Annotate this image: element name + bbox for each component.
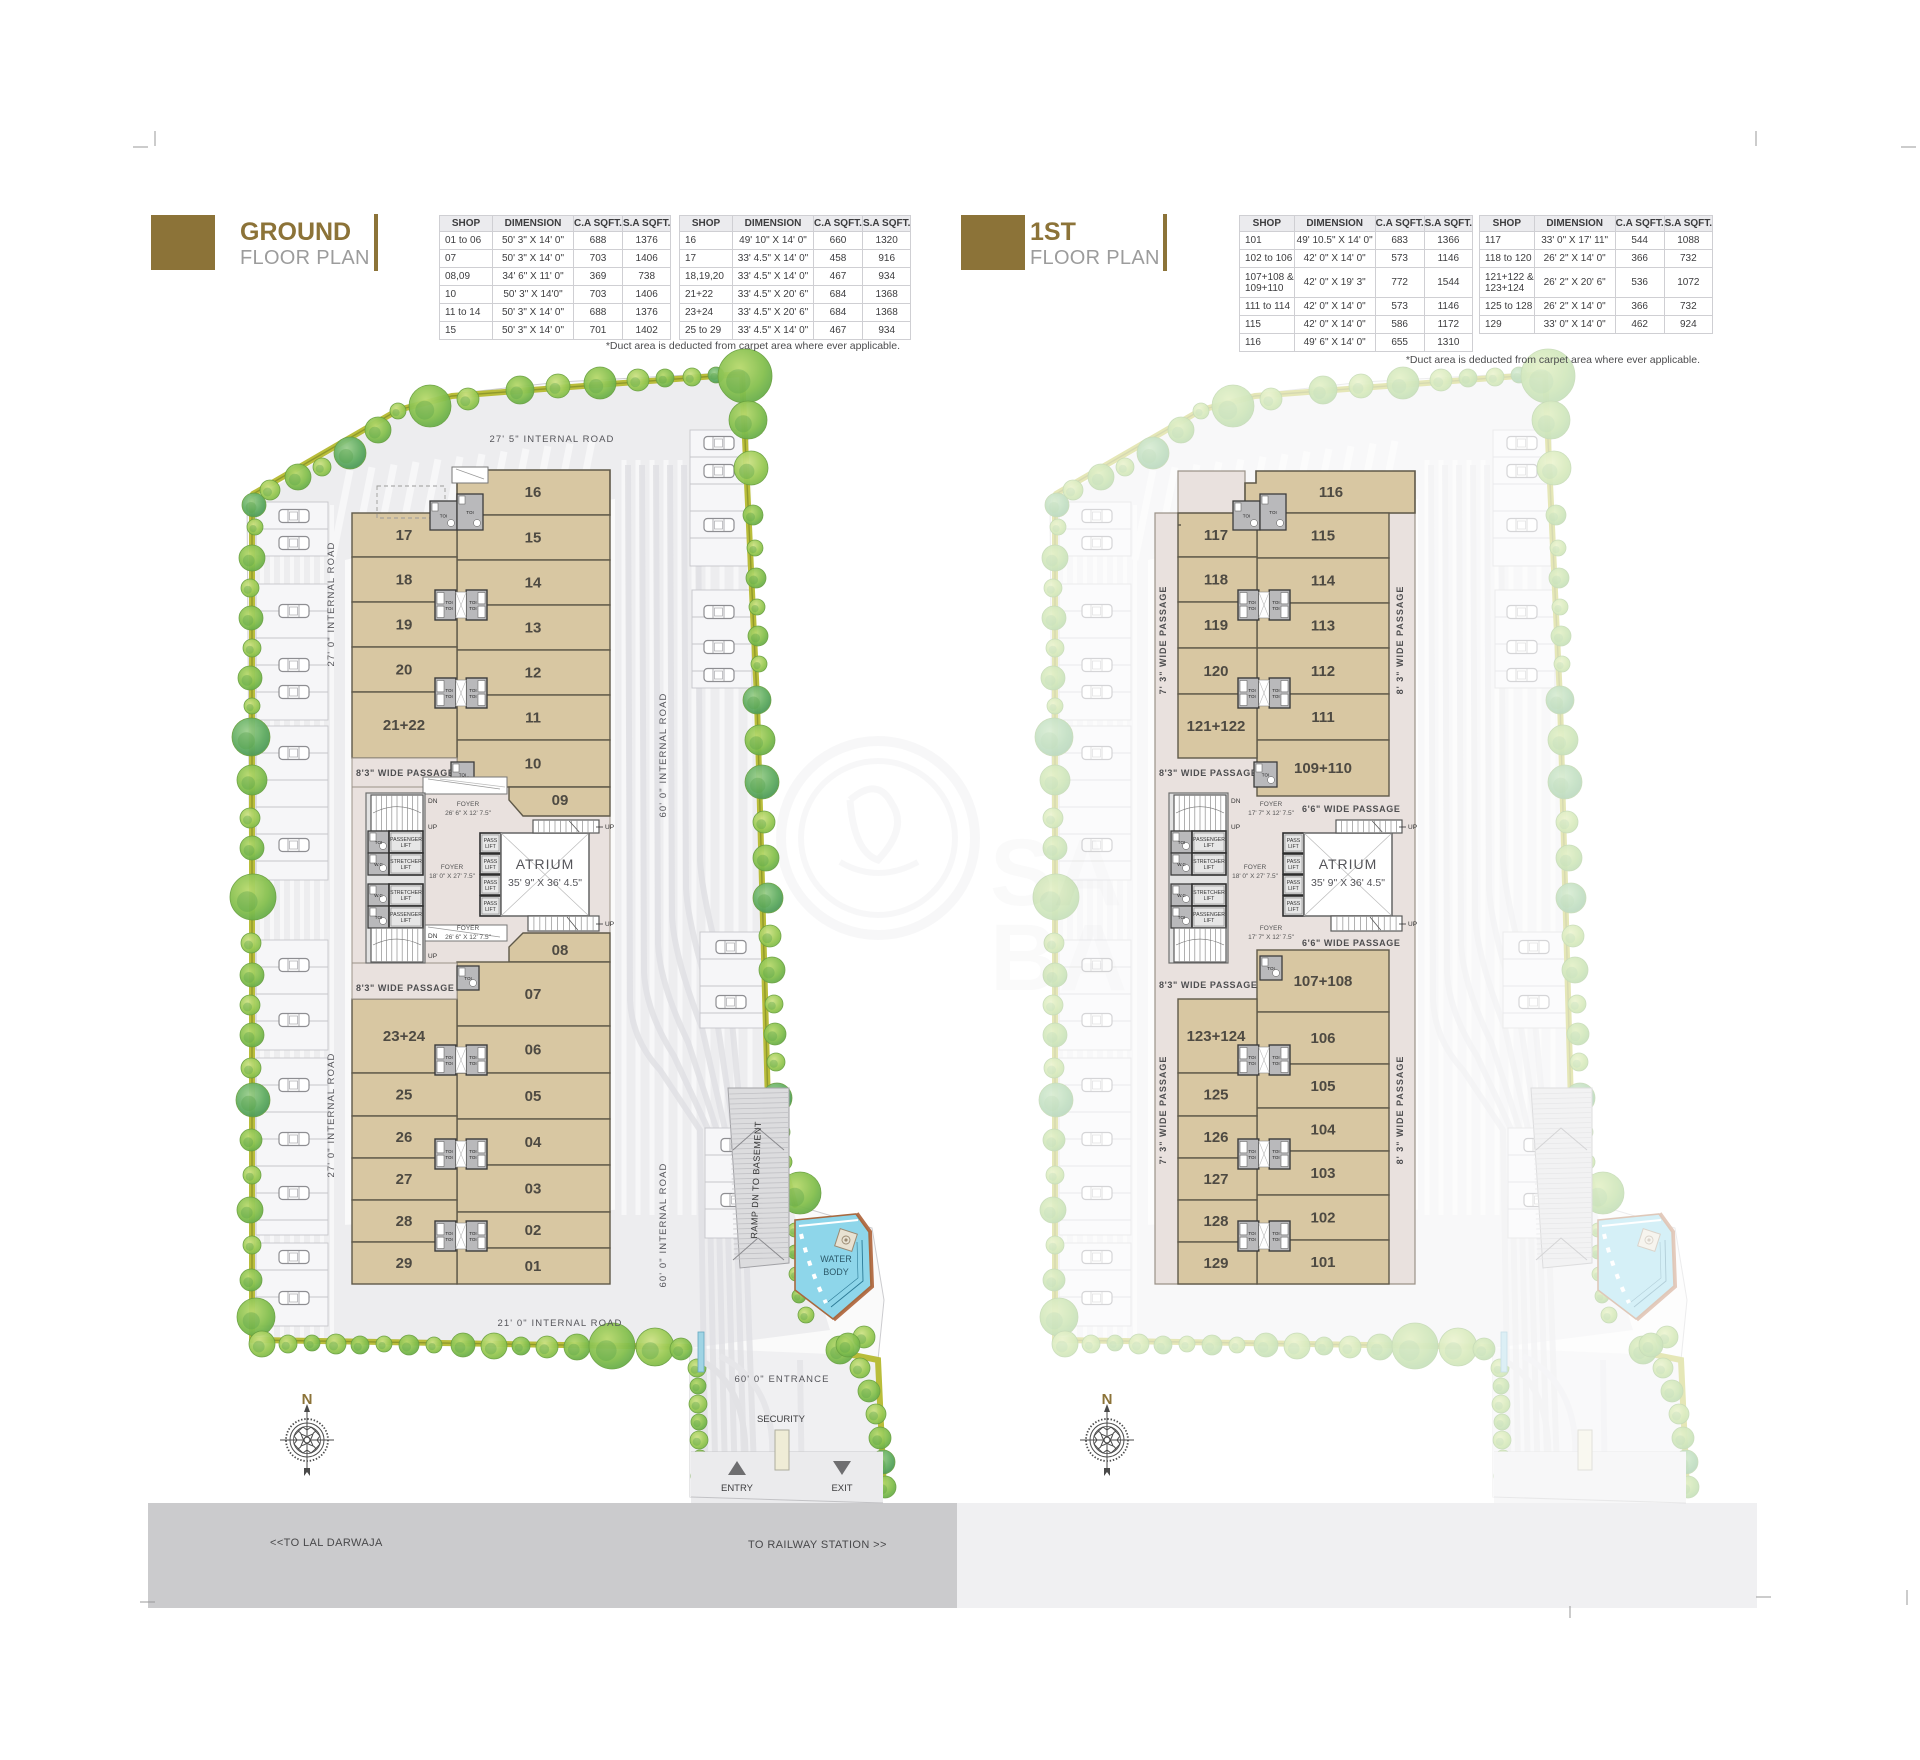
svg-text:TOI: TOI bbox=[1248, 1149, 1255, 1154]
svg-text:TOI: TOI bbox=[469, 1149, 476, 1154]
svg-text:29: 29 bbox=[396, 1255, 413, 1272]
svg-text:TOI: TOI bbox=[1267, 966, 1274, 971]
svg-text:TOI: TOI bbox=[469, 600, 476, 605]
svg-text:TOI: TOI bbox=[1248, 1237, 1255, 1242]
svg-text:8'3" WIDE PASSAGE: 8'3" WIDE PASSAGE bbox=[1159, 768, 1257, 778]
svg-text:07: 07 bbox=[525, 986, 542, 1003]
svg-text:LIFT: LIFT bbox=[1204, 896, 1215, 902]
svg-text:28: 28 bbox=[396, 1213, 413, 1230]
svg-text:W.C: W.C bbox=[1177, 862, 1186, 867]
svg-text:TOI: TOI bbox=[1272, 1155, 1279, 1160]
svg-text:UP: UP bbox=[1408, 921, 1417, 928]
svg-text:TOI: TOI bbox=[1248, 1155, 1255, 1160]
svg-text:111: 111 bbox=[1311, 709, 1334, 726]
svg-text:TOI: TOI bbox=[469, 1237, 476, 1242]
svg-text:27: 27 bbox=[396, 1171, 413, 1188]
svg-text:20: 20 bbox=[396, 662, 413, 679]
svg-text:DN: DN bbox=[428, 798, 438, 805]
svg-text:25: 25 bbox=[396, 1087, 413, 1104]
svg-text:TOI: TOI bbox=[469, 1155, 476, 1160]
svg-text:<<TO LAL DARWAJA: <<TO LAL DARWAJA bbox=[270, 1537, 383, 1549]
svg-text:27' 0" INTERNAL ROAD: 27' 0" INTERNAL ROAD bbox=[326, 541, 337, 666]
svg-text:UP: UP bbox=[1231, 824, 1240, 831]
svg-text:FOYER: FOYER bbox=[1260, 925, 1283, 932]
svg-text:113: 113 bbox=[1311, 618, 1335, 635]
svg-text:08: 08 bbox=[552, 942, 569, 959]
svg-text:109+110: 109+110 bbox=[1294, 760, 1352, 777]
svg-text:102: 102 bbox=[1310, 1210, 1335, 1227]
svg-text:LIFT: LIFT bbox=[485, 865, 496, 871]
svg-text:114: 114 bbox=[1311, 573, 1336, 590]
svg-text:TOI: TOI bbox=[469, 1231, 476, 1236]
svg-text:8' 3" WIDE PASSAGE: 8' 3" WIDE PASSAGE bbox=[1395, 586, 1405, 695]
svg-text:14: 14 bbox=[525, 575, 542, 592]
svg-text:TOI: TOI bbox=[1248, 1231, 1255, 1236]
svg-text:LIFT: LIFT bbox=[1288, 844, 1299, 850]
svg-text:LIFT: LIFT bbox=[1204, 918, 1215, 924]
svg-text:7' 3" WIDE PASSAGE: 7' 3" WIDE PASSAGE bbox=[1158, 1056, 1168, 1165]
svg-text:TOI: TOI bbox=[1272, 688, 1279, 693]
svg-text:N: N bbox=[302, 1391, 313, 1408]
svg-text:129: 129 bbox=[1203, 1255, 1228, 1272]
svg-text:TOI: TOI bbox=[1272, 1055, 1279, 1060]
svg-text:FOYER: FOYER bbox=[441, 864, 464, 871]
svg-text:DN: DN bbox=[1231, 798, 1241, 805]
svg-text:TOI: TOI bbox=[1272, 1149, 1279, 1154]
svg-text:TOI: TOI bbox=[1248, 600, 1255, 605]
svg-text:BODY: BODY bbox=[823, 1267, 849, 1277]
svg-text:13: 13 bbox=[525, 620, 542, 637]
svg-text:LIFT: LIFT bbox=[1288, 886, 1299, 892]
svg-text:LIFT: LIFT bbox=[401, 918, 412, 924]
svg-text:TOI: TOI bbox=[469, 1061, 476, 1066]
svg-text:115: 115 bbox=[1311, 528, 1335, 545]
svg-text:TOI: TOI bbox=[1272, 1231, 1279, 1236]
svg-text:117: 117 bbox=[1204, 527, 1228, 544]
svg-text:21+22: 21+22 bbox=[383, 717, 425, 734]
svg-text:60' 0" INTERNAL ROAD: 60' 0" INTERNAL ROAD bbox=[658, 1162, 669, 1287]
svg-text:17' 7" X 12' 7.5": 17' 7" X 12' 7.5" bbox=[1248, 810, 1294, 817]
svg-text:TOI: TOI bbox=[1262, 773, 1269, 778]
svg-text:TO RAILWAY STATION >>: TO RAILWAY STATION >> bbox=[748, 1539, 887, 1551]
svg-text:11: 11 bbox=[525, 710, 541, 727]
svg-text:TOI: TOI bbox=[445, 694, 452, 699]
svg-text:TOI: TOI bbox=[469, 606, 476, 611]
svg-text:104: 104 bbox=[1310, 1122, 1336, 1139]
svg-text:LIFT: LIFT bbox=[1204, 865, 1215, 871]
svg-text:116: 116 bbox=[1319, 484, 1343, 501]
svg-text:TOI: TOI bbox=[445, 606, 452, 611]
svg-text:TOI: TOI bbox=[1248, 688, 1255, 693]
svg-text:27' 0" INTERNAL ROAD: 27' 0" INTERNAL ROAD bbox=[326, 1052, 337, 1177]
svg-text:FOYER: FOYER bbox=[457, 925, 480, 932]
svg-text:ENTRY: ENTRY bbox=[721, 1483, 754, 1494]
svg-text:05: 05 bbox=[525, 1088, 542, 1105]
svg-text:18' 0" X 27' 7.5": 18' 0" X 27' 7.5" bbox=[429, 873, 475, 880]
svg-text:LIFT: LIFT bbox=[1288, 865, 1299, 871]
svg-text:LIFT: LIFT bbox=[485, 907, 496, 913]
svg-text:TOI: TOI bbox=[464, 976, 471, 981]
svg-text:FOYER: FOYER bbox=[457, 801, 480, 808]
svg-text:TOI: TOI bbox=[1272, 600, 1279, 605]
svg-text:16: 16 bbox=[525, 484, 542, 501]
svg-text:TOI: TOI bbox=[1248, 1055, 1255, 1060]
svg-text:01: 01 bbox=[525, 1258, 542, 1275]
svg-text:27' 5" INTERNAL ROAD: 27' 5" INTERNAL ROAD bbox=[489, 434, 614, 445]
svg-text:TOI: TOI bbox=[375, 840, 382, 845]
svg-text:LIFT: LIFT bbox=[1204, 843, 1215, 849]
svg-text:17: 17 bbox=[396, 527, 413, 544]
svg-text:W.C: W.C bbox=[374, 893, 383, 898]
svg-text:TOI: TOI bbox=[445, 1237, 452, 1242]
svg-text:119: 119 bbox=[1204, 617, 1228, 634]
svg-text:UP: UP bbox=[428, 953, 437, 960]
svg-text:10: 10 bbox=[525, 756, 542, 773]
svg-text:W.C: W.C bbox=[374, 862, 383, 867]
svg-text:15: 15 bbox=[525, 530, 542, 547]
svg-text:SECURITY: SECURITY bbox=[757, 1414, 806, 1425]
svg-text:TOI: TOI bbox=[469, 1055, 476, 1060]
svg-text:101: 101 bbox=[1310, 1254, 1335, 1271]
svg-text:TOI: TOI bbox=[445, 1155, 452, 1160]
svg-text:EXIT: EXIT bbox=[831, 1483, 852, 1494]
svg-text:TOI: TOI bbox=[1178, 840, 1185, 845]
svg-text:23+24: 23+24 bbox=[383, 1028, 426, 1045]
svg-text:TOI: TOI bbox=[375, 915, 382, 920]
svg-text:TOI: TOI bbox=[1248, 606, 1255, 611]
svg-text:FOYER: FOYER bbox=[1260, 801, 1283, 808]
svg-text:18: 18 bbox=[396, 572, 413, 589]
svg-text:DN: DN bbox=[428, 933, 438, 940]
svg-text:TOI: TOI bbox=[469, 694, 476, 699]
svg-text:8' 3" WIDE PASSAGE: 8' 3" WIDE PASSAGE bbox=[1395, 1056, 1405, 1165]
svg-text:TOI: TOI bbox=[1272, 694, 1279, 699]
svg-text:LIFT: LIFT bbox=[401, 865, 412, 871]
svg-text:127: 127 bbox=[1203, 1171, 1228, 1188]
svg-text:21' 0" INTERNAL ROAD: 21' 0" INTERNAL ROAD bbox=[497, 1318, 622, 1329]
svg-text:128: 128 bbox=[1203, 1213, 1228, 1230]
svg-text:60' 0" INTERNAL ROAD: 60' 0" INTERNAL ROAD bbox=[658, 692, 669, 817]
svg-text:125: 125 bbox=[1203, 1087, 1228, 1104]
svg-text:FOYER: FOYER bbox=[1244, 864, 1267, 871]
svg-text:126: 126 bbox=[1203, 1129, 1228, 1146]
svg-text:107+108: 107+108 bbox=[1294, 973, 1353, 990]
svg-text:17' 7" X 12' 7.5": 17' 7" X 12' 7.5" bbox=[1248, 934, 1294, 941]
svg-text:26' 6" X 12' 7.5": 26' 6" X 12' 7.5" bbox=[445, 810, 491, 817]
svg-text:ATRIUM: ATRIUM bbox=[516, 856, 575, 872]
svg-text:103: 103 bbox=[1310, 1165, 1335, 1182]
svg-text:8'3" WIDE PASSAGE: 8'3" WIDE PASSAGE bbox=[356, 983, 454, 993]
svg-text:118: 118 bbox=[1204, 572, 1228, 589]
svg-text:121+122: 121+122 bbox=[1187, 718, 1246, 735]
svg-text:04: 04 bbox=[525, 1134, 542, 1151]
svg-text:TOI: TOI bbox=[1178, 915, 1185, 920]
svg-text:03: 03 bbox=[525, 1181, 542, 1198]
svg-text:105: 105 bbox=[1310, 1078, 1335, 1095]
svg-text:TOI: TOI bbox=[445, 600, 452, 605]
svg-text:120: 120 bbox=[1203, 663, 1228, 680]
svg-text:09: 09 bbox=[552, 792, 569, 809]
svg-text:TOI: TOI bbox=[445, 1055, 452, 1060]
svg-text:26' 6" X 12' 7.5": 26' 6" X 12' 7.5" bbox=[445, 934, 491, 941]
svg-text:UP: UP bbox=[428, 824, 437, 831]
svg-text:8'3" WIDE PASSAGE: 8'3" WIDE PASSAGE bbox=[1159, 980, 1257, 990]
svg-text:TOI: TOI bbox=[469, 688, 476, 693]
svg-text:LIFT: LIFT bbox=[485, 844, 496, 850]
svg-text:18' 0" X 27' 7.5": 18' 0" X 27' 7.5" bbox=[1232, 873, 1278, 880]
svg-text:112: 112 bbox=[1311, 663, 1335, 680]
svg-text:LIFT: LIFT bbox=[401, 843, 412, 849]
svg-text:UP: UP bbox=[1408, 824, 1417, 831]
svg-text:TOI: TOI bbox=[1248, 694, 1255, 699]
svg-text:LIFT: LIFT bbox=[1288, 907, 1299, 913]
svg-text:7' 3" WIDE PASSAGE: 7' 3" WIDE PASSAGE bbox=[1158, 586, 1168, 695]
svg-text:TOI: TOI bbox=[1272, 1061, 1279, 1066]
svg-text:02: 02 bbox=[525, 1222, 542, 1239]
svg-text:TOI: TOI bbox=[1272, 606, 1279, 611]
svg-text:N: N bbox=[1102, 1391, 1113, 1408]
svg-text:6'6" WIDE PASSAGE: 6'6" WIDE PASSAGE bbox=[1302, 804, 1400, 814]
svg-text:TOI: TOI bbox=[1248, 1061, 1255, 1066]
svg-text:26: 26 bbox=[396, 1129, 413, 1146]
svg-text:TOI: TOI bbox=[1243, 514, 1250, 519]
svg-text:6'6" WIDE PASSAGE: 6'6" WIDE PASSAGE bbox=[1302, 938, 1400, 948]
svg-text:WATER: WATER bbox=[820, 1254, 852, 1264]
svg-text:TOI: TOI bbox=[1272, 1237, 1279, 1242]
svg-text:TOI: TOI bbox=[1269, 510, 1276, 515]
svg-text:TOI: TOI bbox=[445, 1061, 452, 1066]
svg-text:19: 19 bbox=[396, 617, 413, 634]
svg-text:TOI: TOI bbox=[445, 1149, 452, 1154]
svg-text:106: 106 bbox=[1310, 1030, 1335, 1047]
svg-text:60' 0" ENTRANCE: 60' 0" ENTRANCE bbox=[734, 1374, 829, 1385]
svg-text:LIFT: LIFT bbox=[485, 886, 496, 892]
svg-text:TOI: TOI bbox=[466, 510, 473, 515]
svg-text:35' 9" X 36' 4.5": 35' 9" X 36' 4.5" bbox=[1311, 877, 1385, 889]
svg-text:UP: UP bbox=[605, 921, 614, 928]
svg-text:12: 12 bbox=[525, 665, 542, 682]
svg-text:TOI: TOI bbox=[445, 688, 452, 693]
svg-text:TOI: TOI bbox=[445, 1231, 452, 1236]
svg-text:ATRIUM: ATRIUM bbox=[1319, 856, 1378, 872]
svg-text:06: 06 bbox=[525, 1042, 542, 1059]
svg-text:TOI: TOI bbox=[440, 514, 447, 519]
svg-text:LIFT: LIFT bbox=[401, 896, 412, 902]
svg-text:UP: UP bbox=[605, 824, 614, 831]
svg-text:W.C: W.C bbox=[1177, 893, 1186, 898]
svg-text:123+124: 123+124 bbox=[1187, 1028, 1246, 1045]
svg-text:35' 9" X 36' 4.5": 35' 9" X 36' 4.5" bbox=[508, 877, 582, 889]
